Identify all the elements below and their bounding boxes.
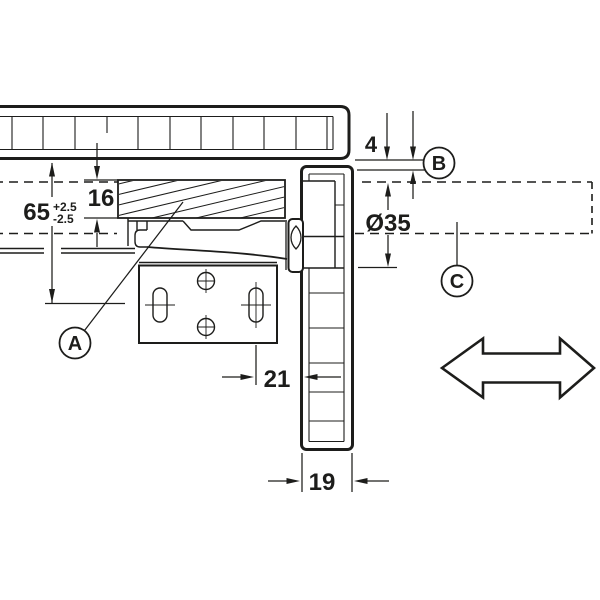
arm-extension-lines	[0, 249, 135, 254]
dimension-door-thickness: 19	[268, 453, 389, 496]
hinge-cross-section-drawing: 65 +2.5 -2.5 16 4 Ø35 21 19	[0, 0, 600, 600]
dimension-top-gap: 4	[355, 111, 434, 199]
label-c-text: C	[450, 271, 464, 293]
dim-4-arrow-up	[410, 171, 416, 185]
cabinet-top-panel	[0, 107, 349, 159]
dim-19-arrow-left	[354, 478, 368, 484]
double-arrow-icon	[442, 339, 594, 398]
mounting-plate	[139, 263, 277, 344]
dim-35-text: Ø35	[365, 210, 410, 237]
dim-65-text: 65	[23, 199, 50, 226]
part-label-b: B	[424, 148, 455, 179]
dim-21-text: 21	[264, 366, 291, 393]
dim-16-arrow-up	[94, 219, 100, 233]
dim-21-arrow-right	[241, 374, 255, 380]
dim-4-arrow-down-2	[410, 147, 416, 161]
dim-16-arrow-down	[94, 166, 100, 180]
dim-19-arrow-right	[287, 478, 301, 484]
dim-65-arrow-up	[49, 163, 55, 177]
technical-drawing-page: 65 +2.5 -2.5 16 4 Ø35 21 19	[0, 0, 600, 600]
dim-65-tol-minus: -2.5	[53, 212, 74, 226]
dim-35-arrow-up	[385, 183, 391, 197]
dim-16-text: 16	[88, 185, 115, 212]
arm-nose	[135, 230, 147, 247]
dimension-cup-diameter: Ø35	[358, 183, 411, 268]
door-panel	[302, 167, 353, 450]
arm-bottom-curve	[147, 247, 287, 259]
dim-35-arrow-down	[385, 254, 391, 268]
label-a-text: A	[68, 333, 82, 355]
label-b-text: B	[432, 153, 446, 175]
dim-19-text: 19	[309, 469, 336, 496]
dim-4-arrow-down-1	[384, 147, 390, 161]
dim-65-arrow-down	[49, 289, 55, 303]
panel-outline	[0, 107, 349, 159]
dim-4-text: 4	[365, 132, 378, 157]
